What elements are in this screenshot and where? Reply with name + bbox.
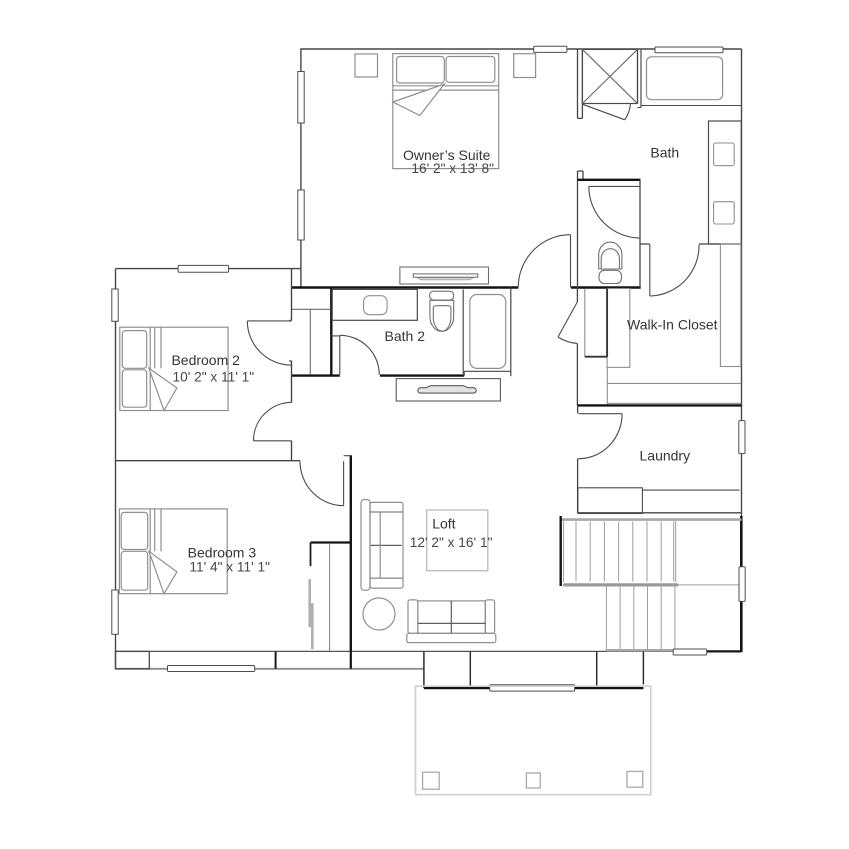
- svg-text:Laundry: Laundry: [640, 448, 691, 464]
- svg-text:16' 2" x 13' 8": 16' 2" x 13' 8": [411, 161, 494, 176]
- svg-text:Bath 2: Bath 2: [385, 328, 426, 344]
- svg-text:Loft: Loft: [432, 516, 455, 532]
- svg-text:11' 4" x 11' 1": 11' 4" x 11' 1": [189, 560, 270, 575]
- svg-text:10' 2" x 11' 1": 10' 2" x 11' 1": [172, 370, 254, 385]
- svg-text:12' 2" x 16' 1": 12' 2" x 16' 1": [410, 535, 493, 550]
- svg-text:Bedroom 2: Bedroom 2: [171, 352, 240, 368]
- svg-text:Bath: Bath: [650, 144, 679, 160]
- svg-text:Bedroom 3: Bedroom 3: [188, 545, 257, 561]
- svg-text:Walk-In Closet: Walk-In Closet: [627, 317, 718, 333]
